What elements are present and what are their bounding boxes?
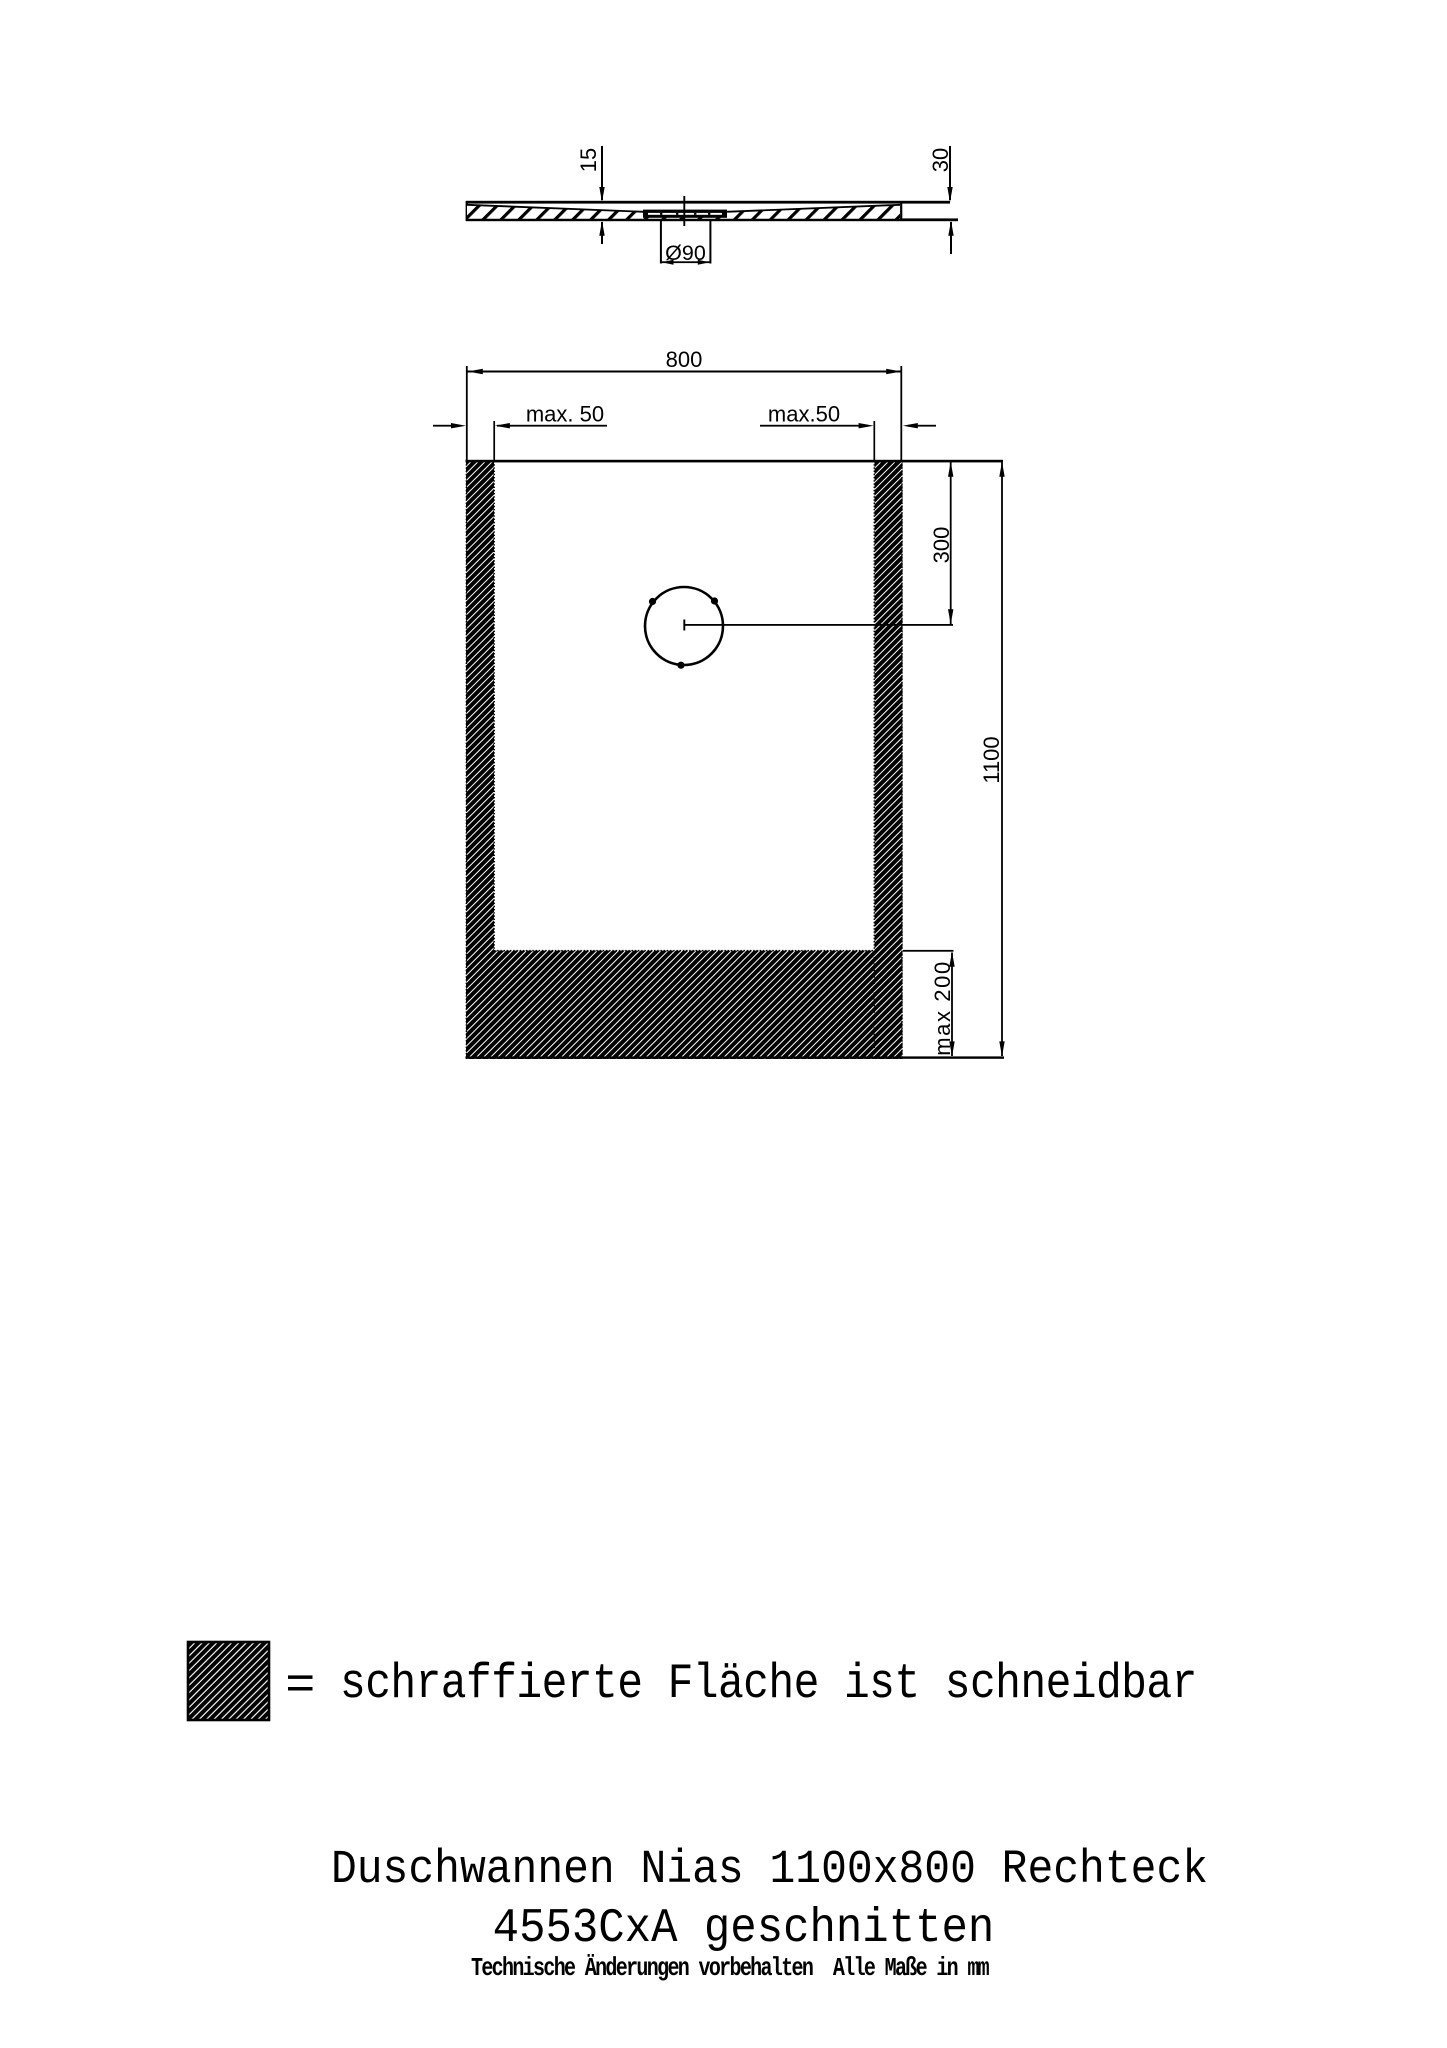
svg-text:1100: 1100 — [979, 736, 1004, 783]
svg-text:300: 300 — [929, 527, 954, 564]
svg-text:15: 15 — [576, 148, 601, 172]
svg-text:max 200: max 200 — [930, 960, 955, 1056]
svg-text:max.50: max.50 — [768, 402, 840, 427]
svg-text:schraffierte Fläche ist schnei: schraffierte Fläche ist schneidbar — [340, 1655, 1197, 1712]
svg-text:30: 30 — [928, 148, 953, 172]
svg-text:Duschwannen Nias 1100x800 Rech: Duschwannen Nias 1100x800 Rechteck — [331, 1842, 1208, 1896]
svg-text:Ø90: Ø90 — [665, 241, 706, 265]
svg-text:Technische Änderungen vorbehal: Technische Änderungen vorbehalten Alle M… — [471, 1954, 989, 1983]
svg-text:4553CxA geschnitten: 4553CxA geschnitten — [493, 1900, 995, 1955]
svg-text:800: 800 — [666, 347, 703, 372]
svg-text:max. 50: max. 50 — [526, 402, 604, 427]
